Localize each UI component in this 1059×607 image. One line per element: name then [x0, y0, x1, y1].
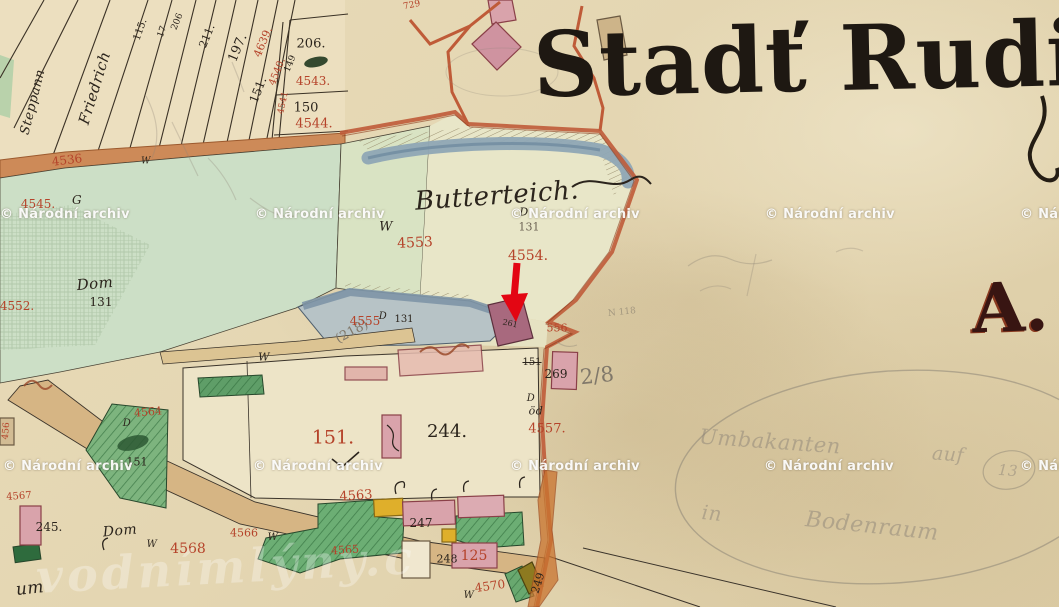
map-title: Stadť Rudig: [532, 0, 1059, 118]
building: [442, 529, 456, 542]
cadastral-map-scan: Stadť Rudig A. SteppannFriedrich115.1720…: [0, 0, 1059, 607]
building: [452, 543, 497, 568]
building: [0, 418, 14, 445]
building: [374, 498, 404, 516]
building: [458, 495, 505, 518]
building: [488, 0, 516, 24]
building: [382, 415, 401, 458]
building: [398, 345, 483, 376]
building: [403, 500, 456, 526]
building: [551, 352, 577, 390]
building: [345, 367, 387, 380]
section-letter: A.: [971, 267, 1050, 350]
building: [472, 22, 521, 70]
building: [20, 506, 41, 545]
